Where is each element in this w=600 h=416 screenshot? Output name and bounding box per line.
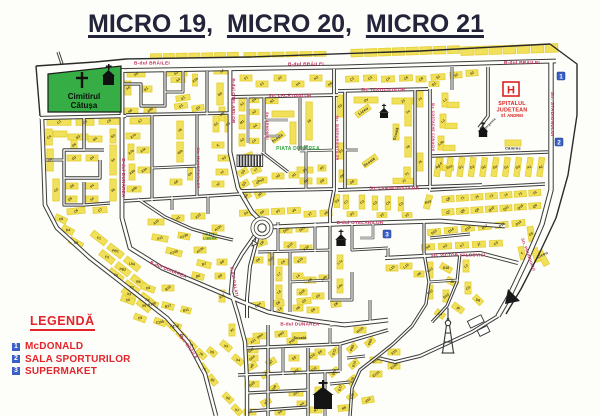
svg-text:SPITALUL: SPITALUL	[498, 101, 526, 107]
svg-text:X4: X4	[236, 358, 241, 363]
svg-text:Cămine: Cămine	[505, 146, 521, 151]
svg-text:X2: X2	[129, 285, 134, 290]
svg-text:Str. COSTACHE CONACHI: Str. COSTACHE CONACHI	[431, 103, 435, 152]
svg-text:F1: F1	[97, 236, 102, 241]
svg-text:J8: J8	[450, 280, 454, 284]
svg-text:B6: B6	[136, 280, 141, 285]
svg-text:Cătușa: Cătușa	[71, 101, 98, 110]
svg-text:X4: X4	[145, 298, 150, 303]
svg-text:C5: C5	[74, 241, 78, 245]
svg-text:Str. LACĂTUSILOR: Str. LACĂTUSILOR	[269, 93, 313, 98]
svg-text:C4: C4	[438, 312, 443, 316]
svg-text:Str. LAMINORISTILOR: Str. LAMINORISTILOR	[369, 186, 420, 191]
svg-text:Str. MUNCITORILOR: Str. MUNCITORILOR	[196, 148, 200, 189]
svg-text:Str. VICTOR VALCOVICI: Str. VICTOR VALCOVICI	[431, 253, 486, 258]
svg-text:F5: F5	[114, 273, 119, 278]
svg-text:X5: X5	[142, 304, 147, 309]
svg-text:PIATA DUNAREA: PIATA DUNAREA	[276, 146, 320, 152]
svg-text:Str. TEXTILISTILOR: Str. TEXTILISTILOR	[361, 87, 406, 92]
svg-text:B-dul BRĂILEI: B-dul BRĂILEI	[288, 61, 324, 68]
svg-text:G18: G18	[443, 266, 450, 270]
svg-text:H: H	[507, 85, 515, 97]
svg-text:B-dul OTELARILOR: B-dul OTELARILOR	[337, 220, 384, 225]
svg-text:J6: J6	[456, 306, 460, 310]
svg-text:B-dul BRĂILEI: B-dul BRĂILEI	[134, 60, 170, 67]
svg-text:C8: C8	[59, 217, 64, 221]
svg-text:X3: X3	[224, 344, 229, 349]
svg-text:C8: C8	[146, 286, 151, 291]
svg-text:X3: X3	[127, 292, 132, 297]
svg-text:2: 2	[557, 140, 561, 147]
svg-text:3: 3	[385, 232, 389, 239]
svg-text:1: 1	[559, 74, 563, 81]
svg-text:Scoală: Scoală	[293, 336, 307, 340]
svg-text:Str. ARMONIEI: Str. ARMONIEI	[265, 112, 269, 140]
svg-text:Cimitirul: Cimitirul	[68, 92, 100, 101]
svg-text:B-dul BRĂILEI: B-dul BRĂILEI	[504, 59, 540, 66]
svg-text:B-dul DUNĂREA: B-dul DUNĂREA	[280, 321, 320, 327]
svg-text:X5: X5	[210, 350, 215, 355]
svg-text:C9: C9	[138, 316, 143, 321]
svg-text:B-dul DUNĂREA: B-dul DUNĂREA	[121, 158, 127, 198]
svg-text:LIBERA: LIBERA	[203, 237, 217, 241]
svg-text:F3: F3	[105, 255, 110, 260]
svg-text:C6: C6	[126, 298, 131, 303]
svg-text:D4: D4	[66, 228, 71, 232]
svg-text:B-dul OTELARILOR: B-dul OTELARILOR	[231, 79, 236, 125]
svg-text:Str. SIDERURGISTILOR: Str. SIDERURGISTILOR	[335, 116, 339, 161]
svg-text:Sf. ANDREI: Sf. ANDREI	[501, 113, 523, 118]
svg-text:Str. STADIONULUI: Str. STADIONULUI	[550, 92, 555, 137]
